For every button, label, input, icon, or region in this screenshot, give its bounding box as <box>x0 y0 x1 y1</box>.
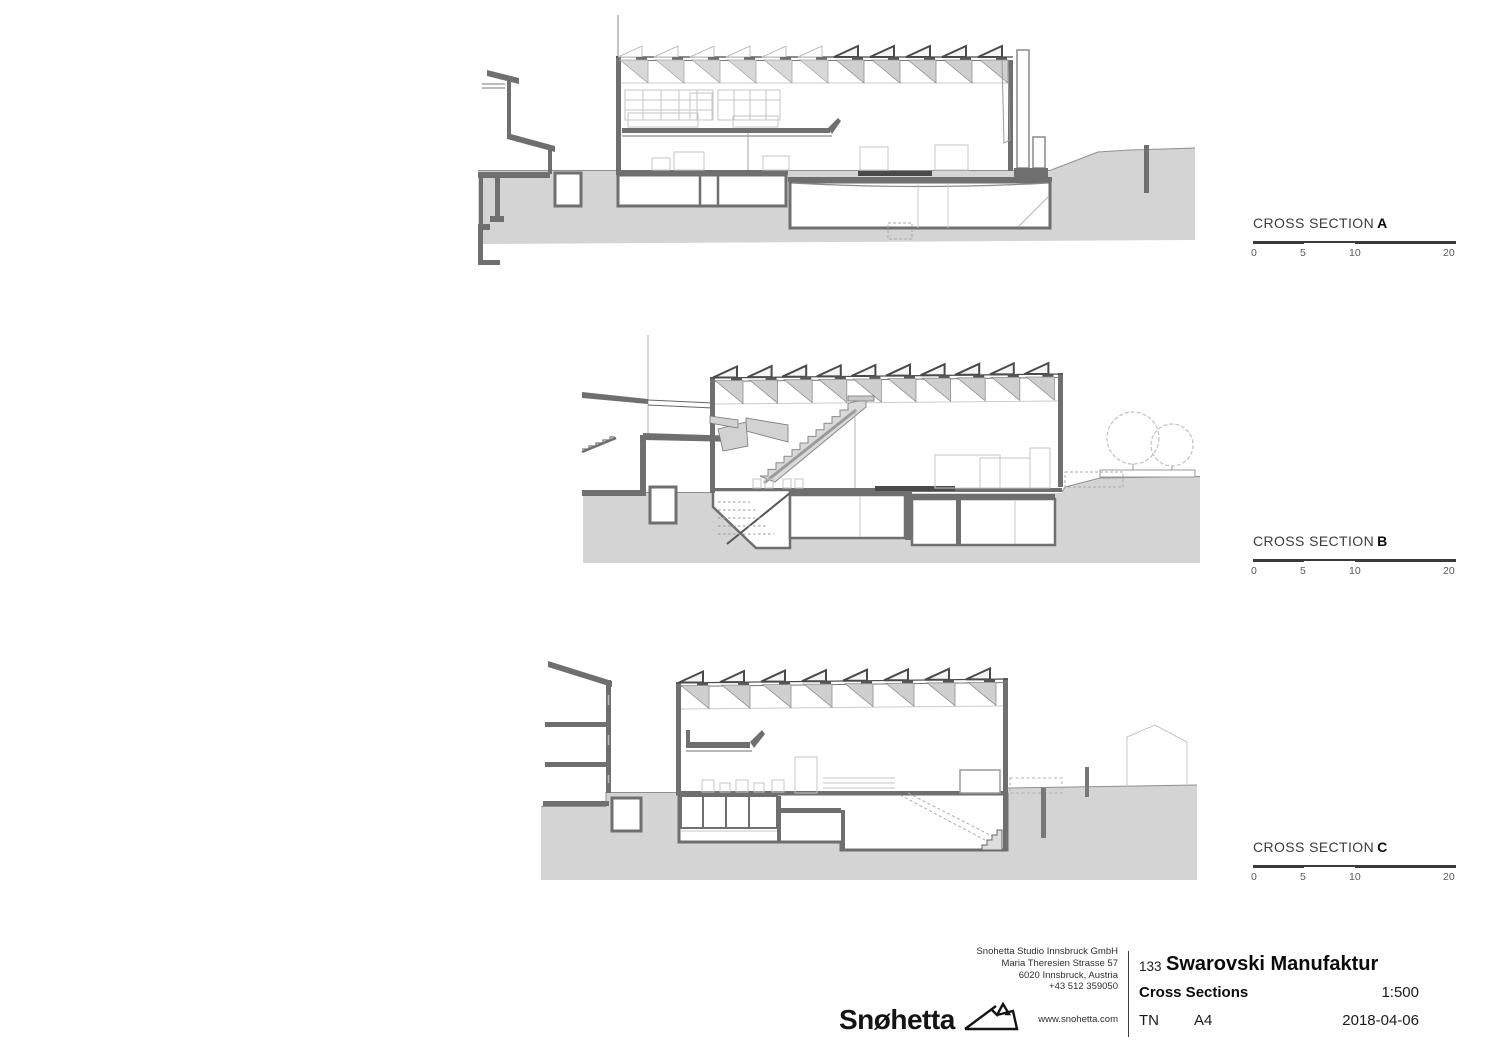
paper-size: A4 <box>1194 1012 1212 1029</box>
snohetta-logo-text: Snøhetta <box>839 1004 955 1036</box>
section-label-c-text: CROSS SECTION <box>1253 839 1374 855</box>
scalebar-tick: 5 <box>1300 247 1306 259</box>
rooftop-vents-a <box>1014 50 1048 181</box>
section-label-b-text: CROSS SECTION <box>1253 533 1374 549</box>
scalebar-tick: 20 <box>1443 247 1455 259</box>
scalebar-tick: 0 <box>1251 871 1257 883</box>
cross-section-c-drawing <box>540 650 1200 885</box>
scalebar-segment <box>1355 559 1456 562</box>
scalebar-segment <box>1253 559 1304 562</box>
address-line: 6020 Innsbruck, Austria <box>976 970 1118 982</box>
section-label-b-letter: B <box>1377 533 1388 549</box>
scalebar-tick: 5 <box>1300 565 1306 577</box>
scalebar-tick: 10 <box>1349 247 1361 259</box>
mezzanine-a <box>622 118 841 170</box>
cross-section-a-drawing <box>478 10 1195 270</box>
address-line: Maria Theresien Strasse 57 <box>976 958 1118 970</box>
neighbor-building-c <box>543 661 641 831</box>
scalebar-tick: 20 <box>1443 871 1455 883</box>
sheet-date: 2018-04-06 <box>1342 1012 1419 1029</box>
drawn-by: TN <box>1139 1012 1159 1029</box>
scalebar-tick: 10 <box>1349 871 1361 883</box>
scalebar-tick: 20 <box>1443 565 1455 577</box>
scalebar-segment <box>1304 559 1355 561</box>
section-label-c: CROSS SECTIONC <box>1253 839 1388 855</box>
scalebar-segment <box>1304 865 1355 867</box>
address-line: +43 512 359050 <box>976 981 1118 993</box>
section-label-c-letter: C <box>1377 839 1388 855</box>
section-label-a: CROSS SECTIONA <box>1253 215 1388 231</box>
scalebar-segment <box>1355 865 1456 868</box>
titleblock-divider <box>1128 951 1129 1037</box>
section-label-a-letter: A <box>1377 215 1388 231</box>
grand-stair-b <box>710 396 874 488</box>
scalebar-segment <box>1304 241 1355 243</box>
basement-c <box>676 770 1007 850</box>
drawing-sheet: CROSS SECTIONA 0 5 10 20 CROSS SECTIONB … <box>0 0 1500 1060</box>
trees-b <box>1065 412 1195 487</box>
sawtooth-roof-c <box>679 668 996 708</box>
cross-section-b-drawing <box>560 330 1200 570</box>
scalebar-segment <box>1355 241 1456 244</box>
site-post-a <box>1144 145 1149 193</box>
drawing-scale: 1:500 <box>1381 984 1419 1001</box>
project-number: 133 <box>1139 959 1162 974</box>
building-shell-a <box>616 15 1013 171</box>
scalebar-tick: 10 <box>1349 565 1361 577</box>
project-name: Swarovski Manufaktur <box>1166 953 1378 976</box>
sheet-title: Cross Sections <box>1139 984 1248 1001</box>
studio-address: Snohetta Studio Innsbruck GmbH Maria The… <box>976 946 1118 993</box>
scalebar-tick: 0 <box>1251 247 1257 259</box>
address-line: Snohetta Studio Innsbruck GmbH <box>976 946 1118 958</box>
mezzanine-c <box>686 730 765 751</box>
sawtooth-roof-b <box>713 363 1054 404</box>
scalebar-tick: 5 <box>1300 871 1306 883</box>
section-label-b: CROSS SECTIONB <box>1253 533 1388 549</box>
basement-b <box>713 486 1062 548</box>
sawtooth-roof-a <box>618 46 1008 83</box>
scalebar-tick: 0 <box>1251 565 1257 577</box>
scalebar-a: 0 5 10 20 <box>1253 241 1456 263</box>
section-label-a-text: CROSS SECTION <box>1253 215 1374 231</box>
scalebar-segment <box>1253 241 1304 244</box>
mountain-logo-icon <box>964 1002 1020 1032</box>
scalebar-b: 0 5 10 20 <box>1253 559 1456 581</box>
scalebar-segment <box>1253 865 1304 868</box>
website: www.snohetta.com <box>1038 1014 1118 1025</box>
house-outline <box>1127 725 1187 787</box>
scalebar-c: 0 5 10 20 <box>1253 865 1456 887</box>
